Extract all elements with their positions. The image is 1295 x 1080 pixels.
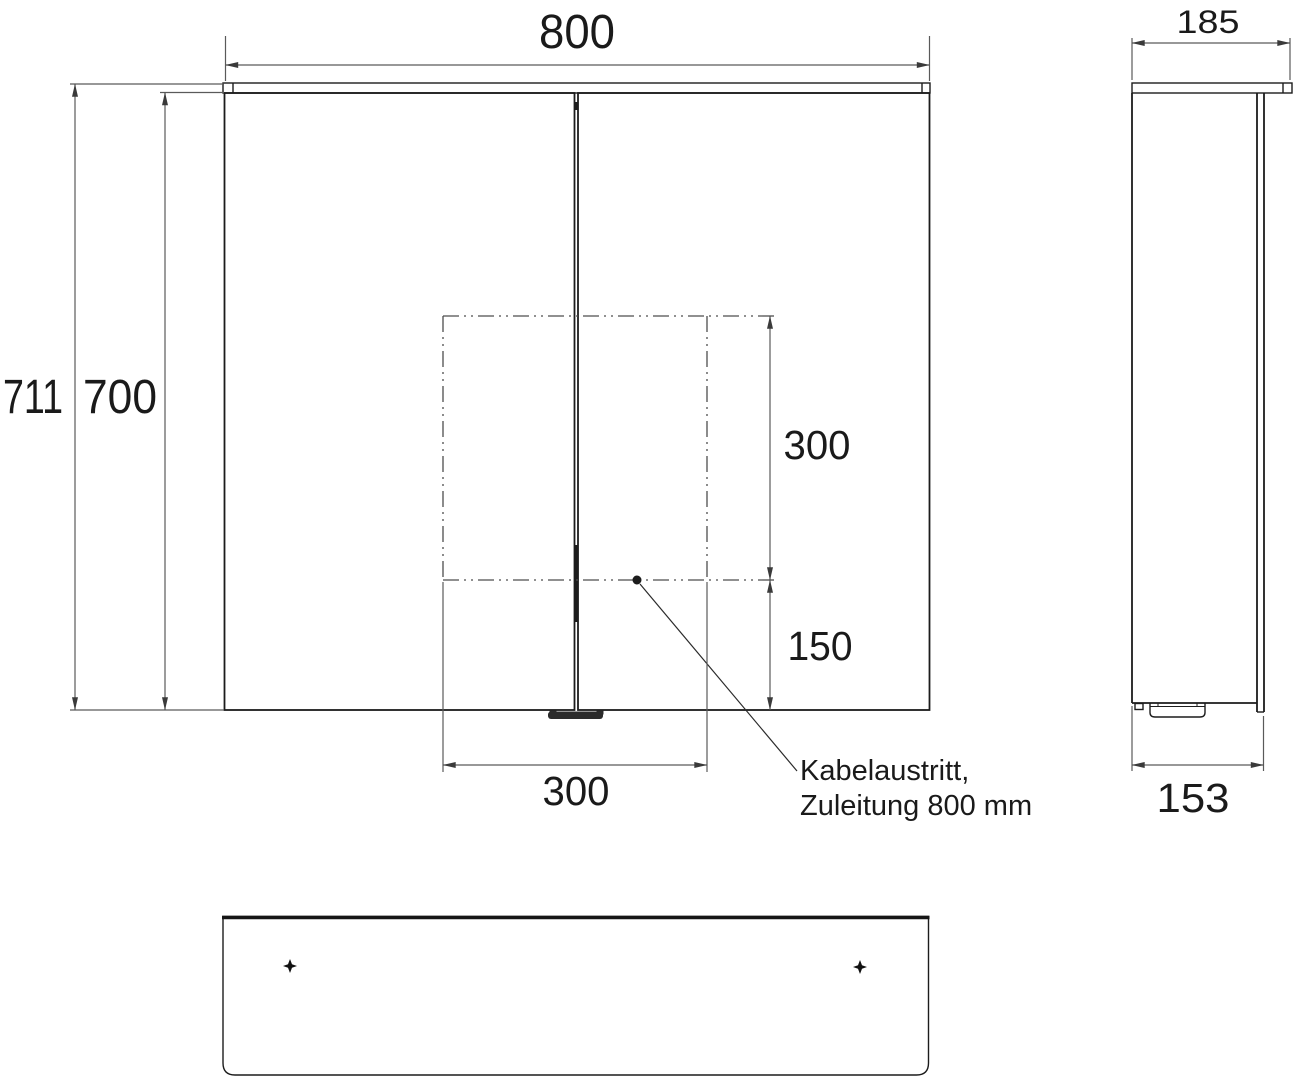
side-bottom-notch [1135, 704, 1143, 710]
cable-exit-point [633, 576, 642, 585]
front-bottom-handle [548, 711, 604, 720]
dim-label-width: 800 [539, 6, 615, 59]
front-top-light-strip [223, 83, 930, 93]
mounting-mark-right [853, 960, 867, 974]
cable-note-line2: Zuleitung 800 mm [800, 790, 1032, 822]
bottom-view-outline [223, 917, 929, 1076]
cable-note: Kabelaustritt, Zuleitung 800 mm [800, 755, 1032, 822]
cable-note-line1: Kabelaustritt, [800, 755, 969, 787]
cutout-dashed-area [443, 316, 778, 580]
front-left-door [225, 93, 575, 710]
bottom-view [222, 917, 930, 1076]
side-dimensions: 185 153 [1132, 4, 1290, 821]
dim-label-depth: 185 [1177, 4, 1240, 40]
dim-label-cutout-offset: 150 [788, 623, 853, 669]
front-right-door [578, 93, 930, 710]
mounting-mark-left [283, 959, 297, 973]
side-view [1132, 83, 1292, 717]
cable-note-leader-line [640, 584, 797, 771]
dim-label-height-body: 700 [83, 371, 157, 424]
dim-label-cutout-height: 300 [784, 422, 851, 468]
front-dimensions: 800 711 700 300 150 300 [3, 6, 930, 814]
dim-label-cutout-width: 300 [543, 768, 610, 814]
dim-label-depth-body: 153 [1157, 775, 1230, 821]
dim-label-height-total: 711 [3, 371, 63, 424]
technical-drawing-page: 800 711 700 300 150 300 Kabelaustritt, Z… [0, 0, 1295, 1080]
side-top-light-strip [1132, 83, 1292, 93]
mirror-cabinet-drawing: 800 711 700 300 150 300 Kabelaustritt, Z… [0, 0, 1295, 1080]
